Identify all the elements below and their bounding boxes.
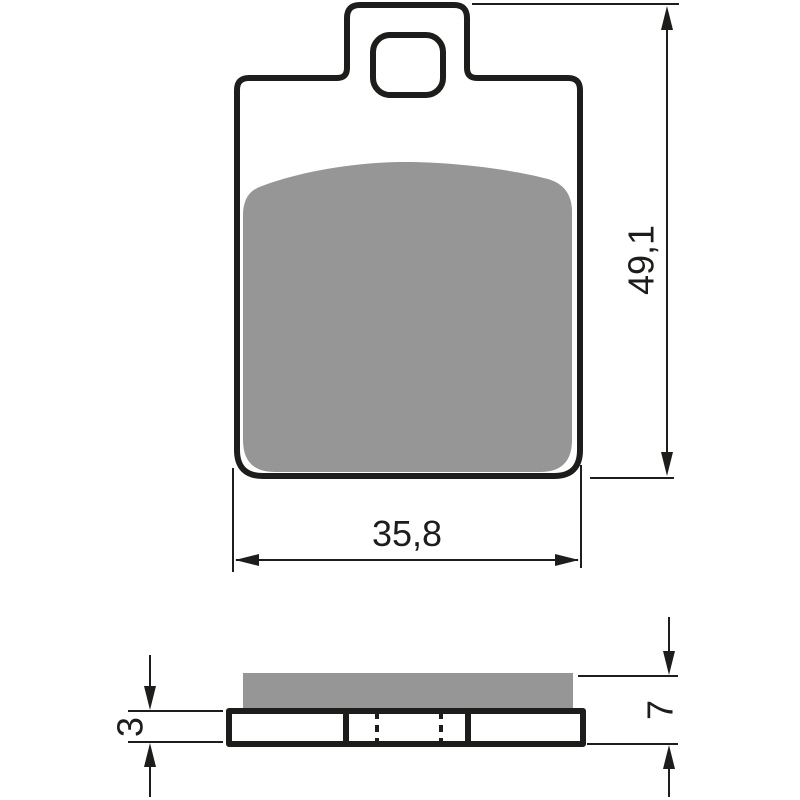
friction-material-layer — [243, 673, 573, 711]
side-view — [229, 673, 583, 744]
brake-pad-drawing-svg: 49,1 35,8 — [0, 0, 800, 800]
arrowhead-down — [661, 452, 673, 476]
dimension-plate-thickness: 3 — [110, 655, 224, 797]
arrowhead-up — [144, 743, 156, 767]
tab-hole — [373, 35, 443, 95]
dimension-label-plate-thickness: 3 — [110, 717, 151, 737]
arrowhead-down — [663, 651, 675, 675]
dimension-total-thickness: 7 — [578, 617, 681, 797]
arrowhead-right — [555, 554, 579, 566]
technical-drawing-canvas: 49,1 35,8 — [0, 0, 800, 800]
front-view — [237, 5, 580, 476]
friction-material-pad — [243, 162, 572, 472]
arrowhead-left — [235, 554, 259, 566]
dimension-label-front-width: 35,8 — [372, 513, 442, 554]
dimension-label-total-thickness: 7 — [640, 700, 681, 720]
dimension-label-front-height: 49,1 — [621, 225, 662, 295]
arrowhead-down — [144, 686, 156, 710]
dimension-front-width: 35,8 — [233, 465, 581, 572]
arrowhead-up — [663, 745, 675, 769]
arrowhead-up — [661, 6, 673, 30]
backing-plate — [229, 711, 583, 744]
